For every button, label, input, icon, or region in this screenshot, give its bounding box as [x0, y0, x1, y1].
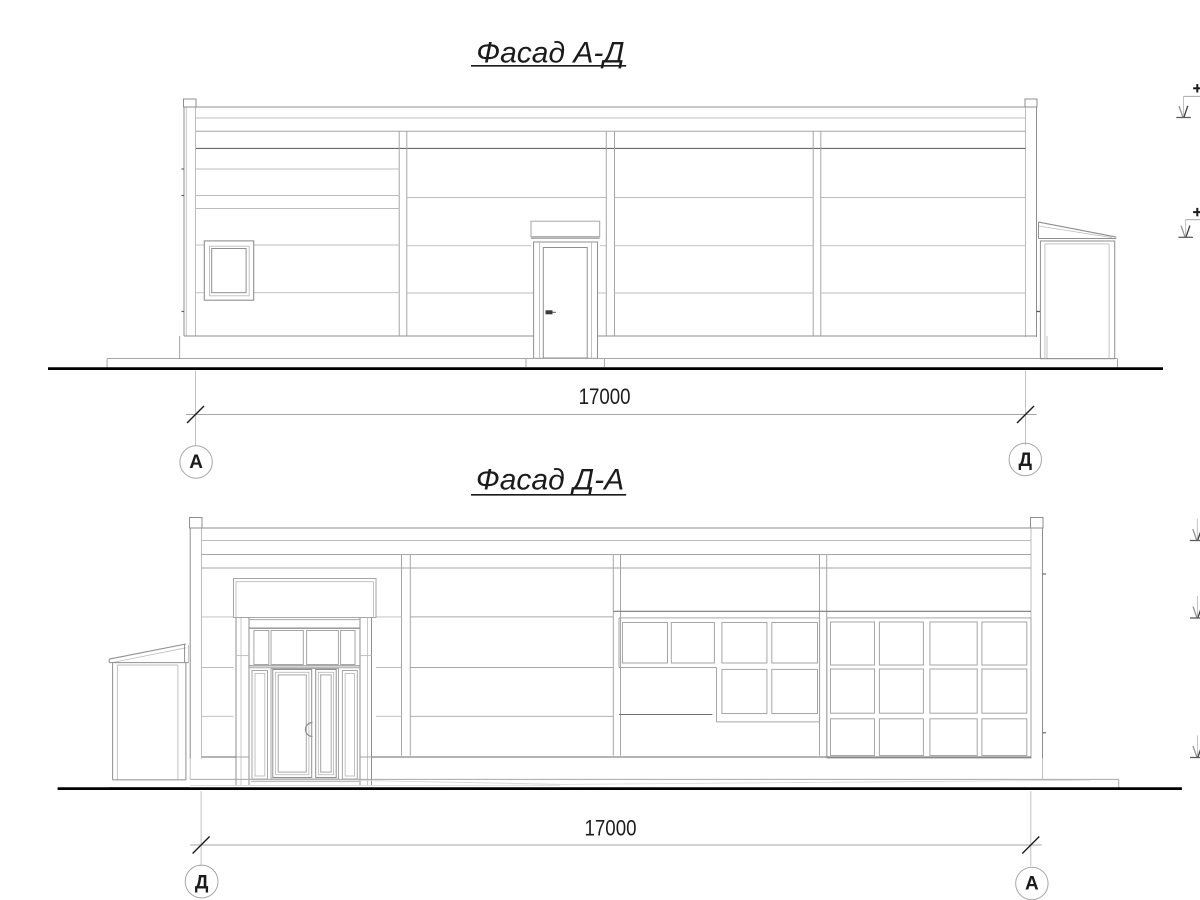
svg-text:17000: 17000 [579, 384, 631, 409]
svg-text:А: А [1025, 874, 1039, 895]
svg-text:17000: 17000 [585, 815, 637, 840]
svg-text:Фасад А-Д: Фасад А-Д [476, 37, 624, 70]
svg-text:Фасад Д-А: Фасад Д-А [476, 464, 624, 497]
svg-text:Д: Д [195, 872, 209, 893]
svg-text:А: А [189, 452, 203, 473]
svg-text:Д: Д [1019, 450, 1033, 471]
